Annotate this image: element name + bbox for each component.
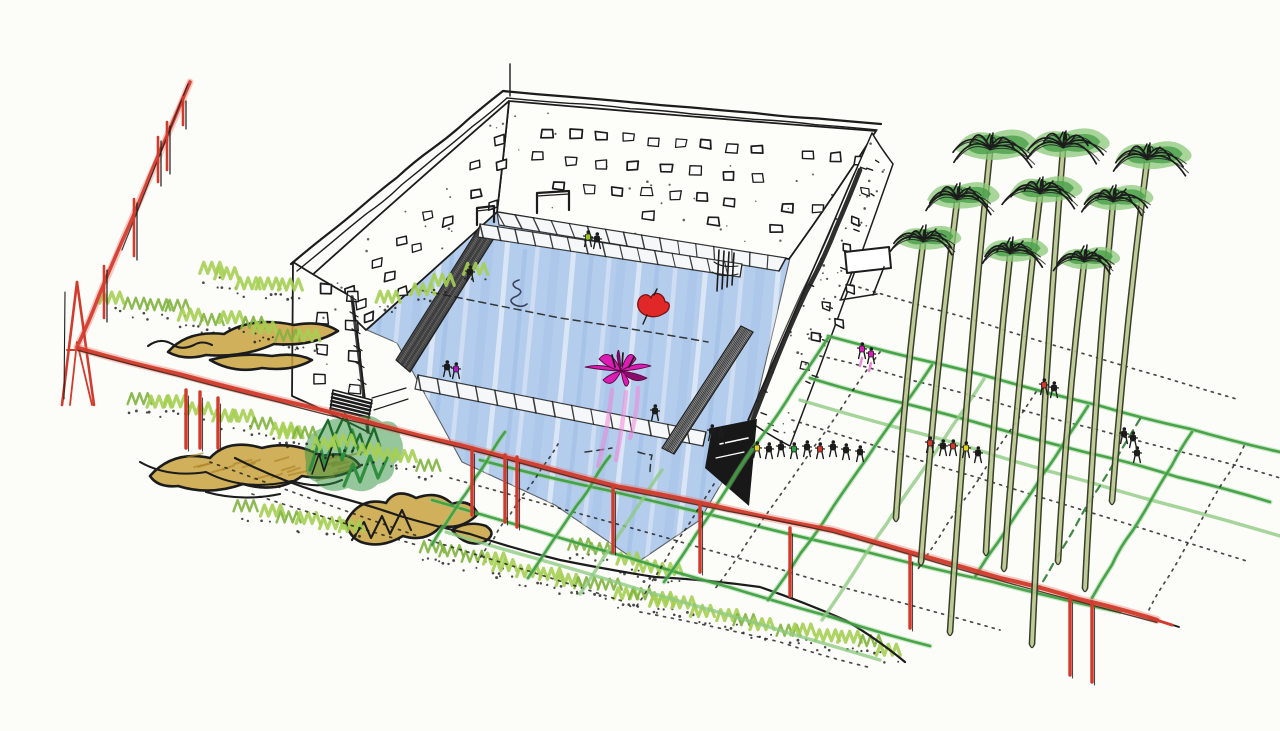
window — [321, 283, 332, 293]
window — [532, 152, 543, 160]
window — [782, 204, 793, 213]
window — [660, 164, 673, 172]
window — [316, 313, 328, 325]
window — [397, 236, 407, 246]
concept-sketch-canvas — [0, 0, 1280, 731]
window — [752, 174, 764, 183]
window — [723, 198, 734, 207]
window — [640, 187, 652, 195]
window — [770, 225, 783, 232]
window — [471, 189, 482, 198]
window — [648, 138, 659, 146]
window — [676, 139, 687, 148]
window — [553, 182, 565, 190]
window — [726, 144, 739, 153]
window — [802, 151, 813, 159]
window — [583, 185, 595, 194]
entrance-canopy — [845, 247, 891, 273]
ochre-foliage — [210, 355, 312, 370]
window — [751, 146, 763, 154]
window — [596, 160, 607, 169]
window — [565, 157, 577, 166]
window — [811, 332, 820, 341]
axonometric-sketch — [0, 0, 1280, 731]
window — [812, 205, 823, 213]
window — [623, 133, 634, 141]
window — [700, 139, 711, 149]
window — [723, 172, 733, 180]
window — [707, 217, 719, 226]
window — [689, 166, 701, 175]
window — [541, 129, 553, 137]
window — [570, 129, 582, 139]
window — [697, 193, 708, 202]
window — [612, 187, 623, 196]
window — [642, 211, 654, 220]
window — [670, 191, 681, 200]
window — [830, 152, 841, 162]
window — [627, 161, 638, 170]
window — [595, 131, 607, 139]
window — [314, 374, 325, 384]
